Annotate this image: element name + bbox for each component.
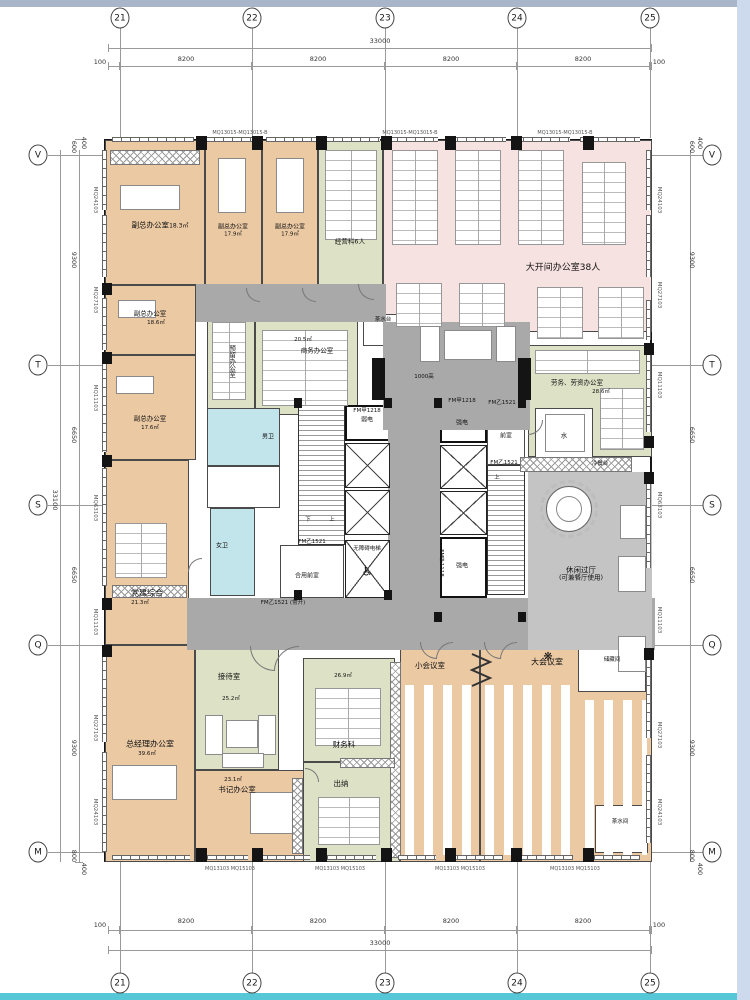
grid-line [79, 150, 80, 862]
room-label-small-meeting: 小会议室 [415, 662, 445, 670]
desk-cluster [459, 283, 505, 327]
column-block [102, 455, 112, 467]
column-block [316, 848, 327, 862]
room-area-party: 21.3㎡ [131, 600, 149, 606]
grid-line [108, 44, 109, 52]
dim-row: 6650 [688, 567, 696, 584]
grid-line [251, 926, 252, 934]
grid-line [384, 926, 385, 934]
door-label-fm-b1521-open: FM乙1521 (常开) [261, 600, 305, 606]
window-strip [646, 352, 651, 432]
label-weak-power: 弱电 [361, 418, 373, 425]
column-block [434, 398, 442, 408]
room-area-labor: 28.6㎡ [592, 389, 610, 395]
column-block [434, 612, 442, 622]
column-block [518, 398, 526, 408]
dim-row: 6650 [688, 427, 696, 444]
corridor-core [388, 430, 440, 600]
room-label-vice3: 副总办公室17.9㎡ [275, 225, 305, 238]
room-area-gm: 39.6㎡ [138, 751, 156, 757]
mullion-label-right: MQ24103 [656, 799, 662, 826]
grid-line [649, 926, 650, 934]
window-strip [102, 752, 107, 852]
dim-bay: 8200 [575, 55, 592, 63]
page-bottom-strip [0, 993, 750, 1000]
grid-bubble-row: T [29, 355, 48, 376]
room-label-secretary: 书记办公室 [218, 786, 256, 794]
floorplan-sheet: { "page": {"top_strip":"#a9b6ca","bottom… [0, 0, 750, 1000]
grid-bubble-col: 21 [111, 8, 130, 29]
grid-line [252, 28, 253, 138]
grid-line [652, 155, 704, 156]
dim-total-bottom: 33000 [370, 939, 391, 947]
meeting-tables [405, 685, 475, 855]
dim-bay: 8200 [310, 55, 327, 63]
grid-bubble-col: 24 [508, 973, 527, 994]
grid-line [650, 862, 651, 974]
mullion-label-left: MQ27103 [92, 287, 98, 314]
grid-bubble-col: 23 [376, 973, 395, 994]
desk [120, 185, 180, 210]
mullion-label-right: MQ27103 [656, 722, 662, 749]
grid-line [108, 930, 652, 931]
desk-cluster [315, 688, 381, 746]
column-block [196, 136, 207, 150]
room-label-storage: 储藏间 [604, 657, 621, 663]
room-label-large-meeting: 大会议室 [531, 659, 563, 668]
grid-bubble-row: T [703, 355, 722, 376]
label-accessible-elevator: 无障碍电梯 [353, 546, 381, 552]
desk-cluster [537, 287, 583, 339]
desk-cluster [392, 150, 438, 245]
sofa [258, 715, 276, 755]
column-block [511, 136, 522, 150]
stair-up-label: 上 [494, 475, 500, 481]
dim-bay: 8200 [178, 917, 195, 925]
room-label-vice5: 副总办公室 [134, 415, 167, 422]
mullion-label-bottom: MQ13103 MQ15103 [315, 866, 365, 872]
column-block [644, 472, 654, 484]
room-vice-office-5 [105, 355, 196, 460]
door-label-fm-b1521: FM乙1521 [490, 460, 517, 466]
grid-line [517, 28, 518, 138]
room-label-reserved: 预留办公室 [227, 345, 234, 378]
desk-cluster [115, 523, 167, 578]
desk-cluster [582, 162, 626, 245]
dim-end: 100 [94, 921, 106, 929]
grid-bubble-row: V [703, 145, 722, 166]
mullion-label-right: MQ11103 [656, 372, 662, 399]
window-strip [324, 137, 380, 142]
sofa [444, 330, 492, 360]
mullion-label-right: MQ27103 [656, 282, 662, 309]
dim-row: 9300 [688, 740, 696, 757]
room-label-gm: 总经理办公室 [126, 741, 174, 750]
grid-line [108, 62, 109, 70]
meeting-chairs [585, 700, 647, 855]
dim-row: 600 [688, 141, 696, 153]
grid-bubble-row: V [29, 145, 48, 166]
grid-line [385, 862, 386, 974]
grid-line [652, 645, 704, 646]
grid-line [652, 365, 704, 366]
room-wash-area [207, 466, 280, 508]
cabinet-run [340, 758, 395, 768]
dim-end: 100 [94, 58, 106, 66]
dim-bay: 8200 [310, 917, 327, 925]
dim-row: 9300 [70, 740, 78, 757]
grid-line [108, 950, 652, 951]
grid-line [516, 62, 517, 70]
window-strip [102, 215, 107, 277]
grid-bubble-col: 22 [243, 973, 262, 994]
dim-row: 9300 [70, 252, 78, 269]
grid-line [120, 28, 121, 138]
room-label-reception: 接待室 [218, 673, 241, 681]
mullion-label-bottom: MQ13103 MQ15103 [435, 866, 485, 872]
grid-bubble-col: 23 [376, 8, 395, 29]
column-block [384, 590, 392, 600]
desk-cluster [455, 150, 501, 245]
grid-bubble-col: 24 [508, 8, 527, 29]
elevator-2 [345, 490, 390, 535]
window-strip [448, 137, 506, 142]
grid-line [649, 62, 650, 70]
label-buffet: 冷餐台 [592, 461, 609, 467]
dim-bay: 8200 [443, 917, 460, 925]
cabinet-run [110, 150, 200, 165]
window-strip [646, 300, 651, 340]
window-strip [518, 855, 573, 860]
folding-partition-icon [468, 652, 494, 690]
label-lobby-height: 1000高 [414, 374, 434, 380]
desk [112, 765, 177, 800]
round-table-inner [556, 496, 582, 522]
dim-end: 100 [653, 921, 665, 929]
dim-row: 400 [80, 863, 88, 875]
window-strip [102, 652, 107, 742]
column-block [381, 136, 392, 150]
grid-bubble-row: Q [29, 635, 48, 656]
label-strong-power-bottom: 强电 [456, 564, 468, 571]
grid-line [75, 505, 83, 506]
room-label-labor: 劳务、劳资办公室 [551, 379, 603, 386]
grid-bubble-row: Q [703, 635, 722, 656]
window-strip [398, 855, 436, 860]
stair-down-label: 下 [305, 517, 311, 523]
window-strip [646, 658, 651, 738]
column-block [381, 848, 392, 862]
room-label-water: 水 [561, 432, 568, 439]
elevator-4 [440, 491, 487, 535]
column-block [102, 352, 112, 364]
mullion-label-top: MQ13015-MQ13015-B [382, 130, 437, 136]
corridor-top [196, 284, 386, 322]
column-block [511, 848, 522, 862]
room-label-cashier: 出纳 [334, 780, 349, 788]
dim-row: 800 [70, 850, 78, 862]
room-label-vice4: 副总办公室 [134, 310, 167, 317]
desk [250, 792, 294, 834]
grid-line [60, 150, 61, 862]
column-block [583, 848, 594, 862]
grid-bubble-row: S [29, 495, 48, 516]
grid-line [75, 365, 83, 366]
sofa [620, 505, 646, 539]
label-front-room: 前室 [500, 434, 512, 441]
room-area-finance: 26.9㎡ [334, 673, 352, 679]
grid-line [516, 926, 517, 934]
grid-line [252, 862, 253, 974]
grid-line [119, 62, 120, 70]
window-strip [112, 137, 194, 142]
dim-row: 6650 [70, 567, 78, 584]
mullion-label-left: MQ27103 [92, 715, 98, 742]
mullion-label-right: MQ24103 [656, 187, 662, 214]
grid-bubble-row: M [29, 842, 48, 863]
window-strip [112, 855, 190, 860]
door-label-fm-b1521: FM乙1521 [488, 400, 515, 406]
column-block [294, 398, 302, 408]
column-block [384, 398, 392, 408]
mullion-label-left: MQ63103 [92, 495, 98, 522]
column-block [644, 436, 654, 448]
column-block [583, 136, 594, 150]
wall-block [372, 358, 385, 400]
column-block [294, 590, 302, 600]
door-label-fm-a1118: FM甲1118 [438, 549, 444, 576]
stair-up-label: 上 [329, 517, 335, 523]
dim-row: 9300 [688, 252, 696, 269]
coffee-table [226, 720, 258, 748]
sofa [205, 715, 223, 755]
room-area-reception: 25.2㎡ [222, 696, 240, 702]
column-block [644, 648, 654, 660]
desk-cluster [396, 283, 442, 327]
room-area-vice4: 18.6㎡ [147, 320, 165, 326]
page-top-strip [0, 0, 750, 7]
buffet-counter [520, 457, 632, 472]
desk-cluster [598, 287, 644, 339]
column-block [102, 645, 112, 657]
mullion-label-top: MQ13015-MQ13015-B [212, 130, 267, 136]
room-label-leisure: 休闲过厅(可兼餐厅使用) [559, 566, 603, 581]
desk [218, 158, 246, 213]
mullion-label-bottom: MQ13103 MQ15103 [205, 866, 255, 872]
column-block [445, 136, 456, 150]
grid-bubble-col: 25 [641, 8, 660, 29]
column-block [102, 598, 112, 610]
stair-east [487, 465, 525, 595]
shared-front-room [280, 545, 344, 598]
room-label-business: 商务办公室 [301, 347, 334, 354]
mullion-label-left: MQ24103 [92, 799, 98, 826]
grid-bubble-row: S [703, 495, 722, 516]
elevator-1 [345, 443, 390, 488]
mullion-label-bottom: MQ13103 MQ15103 [550, 866, 600, 872]
grid-line [108, 946, 109, 954]
column-block [102, 283, 112, 295]
column-block [252, 848, 263, 862]
wall-block [518, 358, 531, 400]
wheelchair-icon: ♿ [362, 565, 373, 578]
column-block [316, 136, 327, 150]
column-block [196, 848, 207, 862]
label-strong-power-top: 强电 [456, 421, 468, 428]
grid-line [108, 48, 652, 49]
dim-row: 600 [70, 141, 78, 153]
grid-bubble-col: 25 [641, 973, 660, 994]
grid-line [686, 365, 694, 366]
desk-cluster [518, 150, 564, 245]
column-block [644, 343, 654, 355]
room-area-vice5: 17.6㎡ [141, 425, 159, 431]
desk [276, 158, 304, 213]
grid-line [251, 62, 252, 70]
grid-bubble-col: 22 [243, 8, 262, 29]
grid-line [384, 62, 385, 70]
grid-line [108, 66, 652, 67]
grid-line [108, 926, 109, 934]
grid-line [686, 645, 694, 646]
sofa [496, 326, 516, 362]
desk-cluster [318, 797, 380, 845]
mullion-label-left: MQ11103 [92, 385, 98, 412]
meeting-tables [485, 685, 573, 855]
desk-cluster [600, 388, 644, 450]
mullion-label-right: MQ11103 [656, 607, 662, 634]
grid-line [120, 862, 121, 974]
window-strip [102, 298, 107, 350]
room-area-business: 20.5㎡ [294, 337, 312, 343]
window-strip [646, 215, 651, 277]
grid-line [119, 926, 120, 934]
column-block [252, 136, 263, 150]
window-strip [388, 137, 438, 142]
door-label-fm-a1218: FM甲1218 [353, 408, 380, 414]
dim-total-left: 33100 [51, 490, 59, 511]
door-label-fm-b1521: FM乙1521 [298, 539, 325, 545]
room-label-vice1: 副总办公室18.3㎡ [132, 222, 189, 231]
dim-bay: 8200 [178, 55, 195, 63]
desk-cluster [325, 150, 377, 240]
grid-line [651, 44, 652, 52]
mullion-label-top: MQ13015-MQ13015-B [537, 130, 592, 136]
window-strip [448, 855, 503, 860]
room-label-men-wc: 男卫 [262, 435, 274, 442]
dim-end: 100 [653, 58, 665, 66]
grid-line [686, 155, 694, 156]
wardrobe [292, 778, 303, 854]
door-label-fm-a1218: FM甲1218 [448, 398, 475, 404]
grid-bubble-row: M [703, 842, 722, 863]
grid-line [686, 505, 694, 506]
stair-west [298, 405, 345, 545]
window-strip [646, 150, 651, 210]
sofa [618, 556, 646, 592]
dim-row: 400 [696, 863, 704, 875]
grid-line [75, 645, 83, 646]
window-strip [102, 150, 107, 210]
sofa [420, 326, 440, 362]
grid-line [517, 862, 518, 974]
desk-cluster [535, 350, 640, 374]
grid-line [75, 155, 83, 156]
grid-line [651, 946, 652, 954]
room-area-secretary: 23.1㎡ [224, 777, 242, 783]
column-block [445, 848, 456, 862]
label-shared-front-room: 合用前室 [295, 574, 319, 581]
mullion-label-left: MQ11103 [92, 609, 98, 636]
elevator-3 [440, 445, 487, 489]
sofa [222, 753, 264, 768]
window-strip [266, 137, 318, 142]
dim-row: 800 [688, 850, 696, 862]
dim-row: 400 [696, 137, 704, 149]
column-block [518, 612, 526, 622]
grid-bubble-col: 21 [111, 973, 130, 994]
room-label-finance: 财务科 [333, 741, 356, 749]
dim-bay: 8200 [575, 917, 592, 925]
room-label-tea-station: 茶水台 [375, 317, 392, 323]
window-strip [646, 755, 651, 843]
room-label-open-office: 大开间办公室38人 [526, 264, 600, 274]
room-label-women-wc: 女卫 [216, 544, 228, 551]
window-strip [102, 468, 107, 586]
window-strip [514, 137, 570, 142]
window-strip [646, 480, 651, 568]
room-label-ops: 经营科6人 [335, 238, 365, 245]
room-women-wc [210, 508, 255, 596]
desk [116, 376, 154, 394]
dim-row: 6650 [70, 427, 78, 444]
room-label-vice2: 副总办公室17.9㎡ [218, 225, 248, 238]
page-right-strip [737, 0, 750, 1000]
dim-row: 400 [80, 137, 88, 149]
window-strip [258, 855, 310, 860]
mullion-label-left: MQ24103 [92, 187, 98, 214]
window-strip [102, 360, 107, 452]
room-label-party: 党建综合 [131, 590, 163, 599]
sofa [618, 636, 646, 672]
room-label-pantry: 茶水间 [612, 819, 629, 825]
mullion-label-right: MQ63103 [656, 492, 662, 519]
grid-line [652, 852, 704, 853]
dim-total-top: 33000 [370, 37, 391, 45]
dim-bay: 8200 [443, 55, 460, 63]
